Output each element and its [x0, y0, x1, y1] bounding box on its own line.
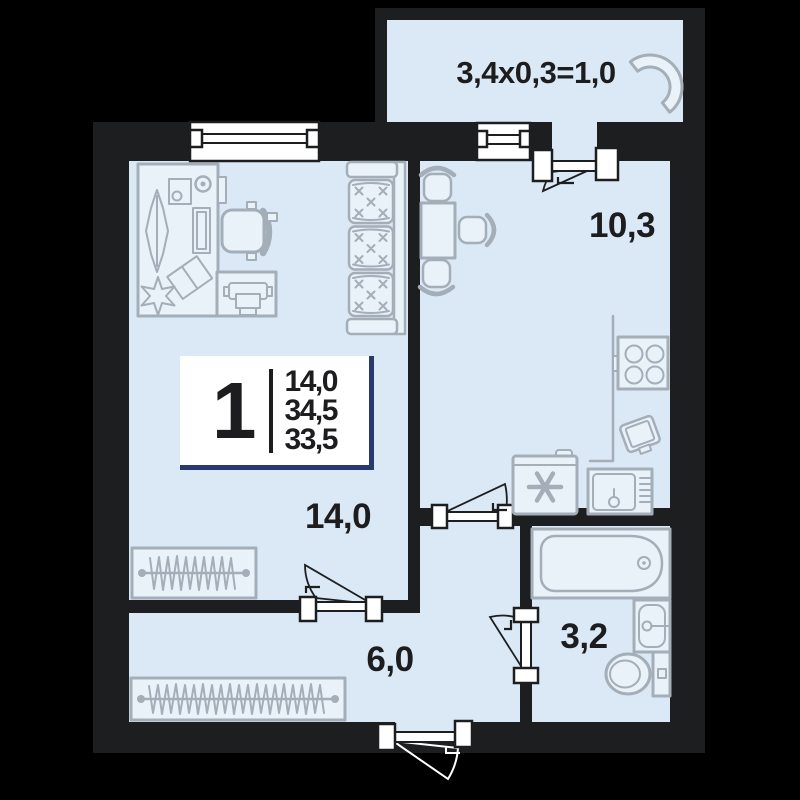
living-room-area-label: 14,0	[305, 497, 371, 537]
kitchen-window-icon	[477, 123, 530, 160]
toilet-icon	[606, 652, 670, 696]
total-area-value: 34,5	[285, 396, 337, 425]
coat-rack-icon	[131, 678, 345, 720]
reduced-area-value: 33,5	[285, 425, 337, 454]
sink-icon	[588, 469, 652, 514]
living-area-value: 14,0	[285, 367, 337, 396]
hallway-area-label: 6,0	[366, 640, 413, 680]
sofa-icon	[347, 162, 405, 334]
badge-divider	[269, 369, 273, 453]
printer-table-icon	[217, 272, 276, 316]
bathtub-icon	[532, 529, 670, 598]
stove-icon	[613, 337, 668, 389]
balcony-area-label: 3,4x0,3=1,0	[456, 55, 615, 91]
fridge-icon	[513, 450, 577, 514]
bathroom-area-label: 3,2	[560, 617, 607, 657]
wardrobe-icon	[132, 548, 256, 598]
floorplan-drawing	[0, 0, 800, 800]
floorplan-canvas: 3,4x0,3=1,0 10,3 14,0 6,0 3,2 1 14,0 34,…	[0, 0, 800, 800]
rooms-count: 1	[212, 371, 255, 451]
desk-icon	[138, 164, 226, 316]
kitchen-area-label: 10,3	[589, 206, 655, 246]
apartment-type-badge: 1 14,0 34,5 33,5	[180, 356, 374, 470]
living-room-window-icon	[190, 122, 319, 161]
washbasin-icon	[634, 600, 670, 652]
monitor-icon	[218, 177, 226, 203]
